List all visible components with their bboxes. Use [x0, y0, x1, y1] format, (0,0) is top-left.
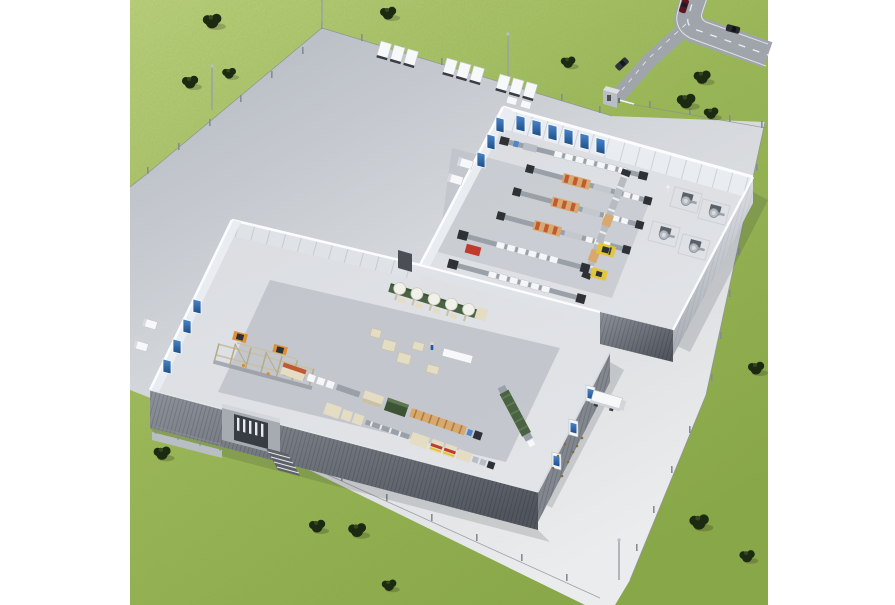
dock-door	[571, 423, 577, 434]
dock-door	[487, 134, 495, 150]
dock-door	[193, 299, 201, 314]
dock-door	[496, 117, 504, 133]
dock-door	[548, 124, 557, 141]
scene-canvas	[0, 0, 895, 605]
dock-door	[183, 319, 191, 334]
dock-door	[532, 120, 541, 137]
dock-door	[516, 115, 525, 132]
dock-door	[173, 339, 181, 354]
factory-campus-render	[0, 0, 895, 605]
dock-door	[477, 152, 485, 168]
worker-white	[666, 185, 669, 193]
dock-door	[163, 359, 171, 374]
dock-door	[580, 133, 589, 150]
dock-door	[596, 138, 605, 155]
dock-door	[564, 129, 573, 146]
worker-blue	[430, 342, 433, 350]
